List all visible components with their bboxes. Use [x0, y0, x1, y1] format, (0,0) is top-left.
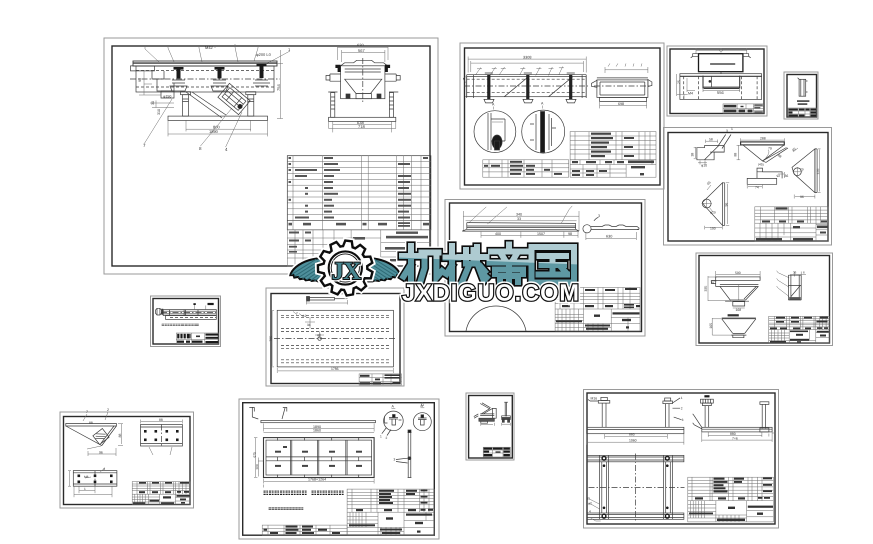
svg-text:300: 300 — [255, 464, 259, 470]
svg-text:φ10: φ10 — [701, 164, 707, 168]
svg-text:675: 675 — [253, 452, 257, 458]
svg-text:29: 29 — [800, 168, 804, 172]
svg-text:1786: 1786 — [331, 367, 339, 371]
svg-text:33: 33 — [517, 217, 521, 221]
svg-text:880: 880 — [629, 433, 635, 437]
svg-text:7: 7 — [296, 312, 298, 316]
svg-text:2: 2 — [386, 436, 388, 440]
svg-text:340: 340 — [516, 212, 522, 216]
svg-text:φ150: φ150 — [163, 95, 171, 99]
svg-text:M4: M4 — [688, 92, 693, 96]
svg-text:(45): (45) — [758, 163, 764, 167]
svg-text:M16: M16 — [591, 397, 598, 401]
svg-text:288: 288 — [760, 136, 766, 140]
svg-text:36: 36 — [785, 174, 789, 178]
svg-text:1507: 1507 — [537, 232, 545, 236]
svg-text:7×6: 7×6 — [732, 437, 738, 441]
svg-text:335: 335 — [704, 286, 708, 292]
svg-text:630: 630 — [606, 234, 612, 238]
svg-text:1: 1 — [380, 435, 382, 439]
svg-text:25: 25 — [677, 80, 681, 84]
svg-text:3: 3 — [598, 214, 600, 218]
svg-text:2: 2 — [681, 407, 683, 411]
svg-text:1060: 1060 — [629, 439, 637, 443]
svg-text:567: 567 — [358, 48, 365, 53]
svg-text:96: 96 — [99, 450, 103, 454]
svg-text:98: 98 — [568, 232, 572, 236]
svg-text:1: 1 — [681, 396, 683, 400]
svg-text:1768×1264: 1768×1264 — [308, 478, 326, 482]
svg-text:630: 630 — [357, 43, 364, 48]
svg-text:φ8: φ8 — [317, 333, 321, 337]
svg-text:M8: M8 — [84, 475, 89, 479]
svg-text:4: 4 — [103, 467, 105, 471]
svg-text:90: 90 — [138, 78, 142, 82]
svg-text:12: 12 — [303, 314, 307, 318]
svg-text:1860: 1860 — [313, 429, 321, 433]
svg-text:754: 754 — [276, 84, 281, 91]
svg-text:58: 58 — [709, 138, 713, 142]
svg-text:88: 88 — [734, 153, 738, 157]
svg-text:120: 120 — [816, 169, 820, 175]
svg-text:718: 718 — [358, 124, 365, 129]
svg-text:880: 880 — [730, 432, 736, 436]
svg-text:36: 36 — [793, 271, 797, 275]
svg-text:96: 96 — [725, 203, 729, 207]
svg-text:30: 30 — [151, 101, 155, 105]
svg-text:M42: M42 — [205, 45, 214, 50]
svg-text:55: 55 — [587, 497, 591, 501]
svg-text:1: 1 — [731, 127, 733, 131]
svg-text:3: 3 — [682, 418, 684, 422]
svg-text:92: 92 — [777, 174, 781, 178]
svg-text:165: 165 — [709, 323, 713, 329]
svg-text:400: 400 — [495, 232, 501, 236]
svg-text:698: 698 — [618, 102, 624, 106]
svg-text:3: 3 — [726, 129, 728, 133]
svg-text:7: 7 — [86, 410, 88, 414]
svg-text:φ200 L0: φ200 L0 — [256, 52, 272, 57]
svg-text:3308: 3308 — [523, 55, 531, 59]
svg-text:168: 168 — [736, 308, 742, 312]
svg-text:38: 38 — [691, 153, 695, 157]
svg-text:590: 590 — [735, 271, 741, 275]
svg-text:1: 1 — [84, 487, 86, 491]
svg-text:96: 96 — [800, 195, 804, 199]
svg-text:2: 2 — [107, 408, 109, 412]
svg-text:JXDIGUO.COM: JXDIGUO.COM — [402, 280, 579, 306]
svg-text:88: 88 — [118, 434, 122, 438]
svg-text:88: 88 — [89, 421, 93, 425]
svg-text:4: 4 — [589, 510, 591, 514]
svg-text:100: 100 — [710, 226, 716, 230]
svg-text:795: 795 — [269, 336, 273, 342]
svg-text:1890: 1890 — [209, 129, 219, 134]
svg-text:79: 79 — [768, 147, 772, 151]
svg-text:φ2: φ2 — [588, 502, 592, 506]
svg-text:34: 34 — [307, 323, 311, 327]
svg-text:φ29: φ29 — [710, 211, 716, 215]
svg-text:3: 3 — [394, 458, 396, 462]
svg-text:310: 310 — [157, 109, 161, 115]
svg-text:74: 74 — [755, 186, 759, 190]
svg-text:X: X — [343, 258, 361, 285]
svg-text:88: 88 — [159, 418, 163, 422]
svg-text:556: 556 — [717, 90, 724, 95]
